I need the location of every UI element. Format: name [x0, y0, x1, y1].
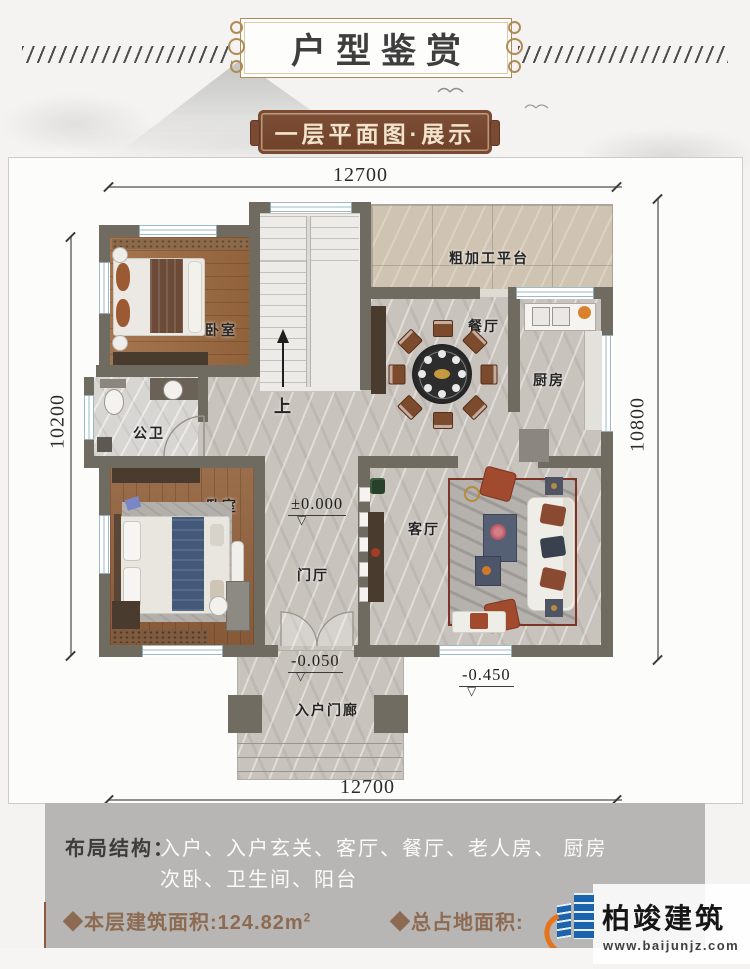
room-label-bathroom: 公卫: [133, 423, 165, 443]
bottom-white-strip: [0, 948, 593, 969]
floor-area-text: ◆本层建筑面积:124.82m2: [63, 906, 311, 935]
kitchen-dish: [578, 306, 591, 319]
bed-bottom-headboard: [114, 514, 121, 614]
wall-segment: [371, 287, 480, 299]
dining-table-dish: [434, 369, 450, 379]
wall-segment: [601, 287, 613, 335]
bird-icon: [524, 100, 550, 113]
subtitle-text: 一层平面图·展示: [275, 115, 476, 149]
page-title: 户型鉴赏: [281, 23, 471, 74]
wall-segment: [221, 645, 278, 657]
bed-bottom-runner: [172, 517, 204, 611]
kitchen-sink: [552, 307, 570, 326]
wall-segment: [96, 365, 260, 377]
logo-url: www.baijunjz.com: [603, 938, 739, 953]
layout-structure-line2: 次卧、卫生间、阳台: [160, 863, 358, 892]
dresser: [113, 352, 208, 365]
kitchen-fridge: [519, 429, 549, 462]
title-box: 户型鉴赏: [240, 18, 512, 78]
bed-top-blanket: [150, 259, 183, 333]
wall-segment: [510, 645, 613, 657]
room-label-living: 客厅: [408, 519, 440, 539]
dim-top-label: 12700: [333, 164, 388, 187]
plant-stand-dot: [551, 483, 557, 489]
bathroom-door-arc: [162, 414, 206, 458]
dim-left-label: 10200: [47, 392, 70, 452]
nightstand: [112, 335, 128, 351]
bed-top-pillow: [116, 299, 130, 327]
kitchen-sink: [532, 307, 550, 326]
window: [270, 202, 352, 213]
bathroom-basin: [163, 380, 183, 400]
hatch-band-right: [518, 46, 728, 63]
dim-right-label: 10800: [627, 395, 650, 455]
porch-column: [228, 695, 262, 733]
toilet-tank: [100, 379, 126, 388]
wall-segment: [358, 456, 458, 468]
level-triangle-icon: ▽: [296, 669, 305, 683]
gold-dish: [464, 486, 480, 502]
plant-stand-dot: [551, 605, 557, 611]
wall-segment: [508, 287, 520, 412]
layout-structure-line1: 入户、入户玄关、客厅、餐厅、老人房、 厨房: [160, 832, 608, 861]
room-label-foyer: 门厅: [297, 565, 329, 585]
logo-name: 柏竣建筑: [602, 897, 726, 937]
floor-area-value: ◆本层建筑面积:124.82m: [63, 912, 304, 934]
layout-structure-label: 布局结构：: [65, 832, 175, 861]
bedroom-bottom-chair: [209, 596, 228, 616]
window: [99, 515, 110, 574]
bedroom-bottom-desk: [226, 581, 250, 631]
entry-door-arcs: [277, 606, 357, 648]
wall-segment: [254, 456, 265, 657]
bed-bottom-sidepillow: [210, 524, 224, 546]
porch-step-line: [237, 743, 402, 744]
wall-segment: [601, 430, 613, 657]
nightstand: [112, 247, 128, 263]
window: [139, 225, 217, 237]
bird-icon: [437, 83, 465, 97]
porch-step-line: [237, 757, 402, 758]
bench-cushion: [470, 613, 488, 629]
logo-mark: [548, 890, 602, 952]
floor-terrace: [371, 204, 613, 290]
stair-arrow-line: [282, 341, 284, 387]
cloud-scroll-ornament-left: [227, 21, 245, 73]
dining-plates: [438, 350, 446, 358]
dining-chair: [433, 320, 453, 337]
wall-segment: [360, 202, 371, 390]
window: [601, 335, 613, 432]
bedroom-bottom-decor-strip: [112, 630, 208, 643]
window: [516, 287, 594, 299]
level-triangle-icon: ▽: [467, 684, 476, 698]
stair-divider: [306, 216, 311, 387]
room-label-bedroom-top: 卧室: [205, 320, 237, 340]
dining-sideboard: [371, 306, 386, 394]
window: [439, 645, 512, 657]
floor-area-sup: 2: [304, 910, 312, 924]
dining-chair: [481, 365, 498, 385]
tv-cabinet-vase: [371, 548, 380, 557]
sofa-pillow: [540, 535, 567, 558]
window: [84, 395, 94, 440]
bathroom-stool: [97, 437, 112, 452]
wall-segment: [249, 202, 260, 377]
bedroom-top-decor-strip: [112, 239, 248, 249]
stair-arrow-head: [277, 329, 289, 343]
window: [142, 645, 223, 657]
wall-segment: [99, 572, 110, 657]
wall-segment: [84, 438, 94, 468]
tv-cabinet: [368, 512, 384, 602]
hatch-band-left: [22, 46, 232, 63]
sofa-pillow: [539, 503, 566, 527]
cloud-scroll-ornament-right: [505, 21, 523, 73]
toilet-bowl: [104, 389, 124, 415]
dim-bottom-label: 12700: [340, 776, 395, 799]
kitchen-side-counter: [584, 331, 602, 430]
window: [99, 262, 110, 314]
room-label-terrace: 粗加工平台: [449, 248, 529, 268]
dim-line-right: [657, 198, 659, 660]
level-triangle-icon: ▽: [297, 513, 306, 527]
room-label-porch: 入户门廊: [295, 700, 359, 720]
dining-chair: [433, 412, 453, 429]
dim-line-bottom: [108, 799, 622, 801]
poster-page: 户型鉴赏 一层平面图·展示 上: [0, 0, 750, 969]
bedroom-bottom-corner-table: [112, 601, 140, 629]
dining-chair: [389, 365, 406, 385]
side-table-item: [482, 566, 491, 575]
bedroom-bottom-cabinet: [112, 468, 200, 483]
room-label-kitchen: 厨房: [533, 370, 565, 390]
wall-segment: [84, 377, 94, 395]
porch-step-line: [237, 771, 402, 772]
wall-segment: [99, 456, 110, 515]
bed-top-pillow: [116, 263, 130, 291]
porch-column: [374, 695, 408, 733]
bed-bottom-pillow: [123, 521, 141, 561]
wall-segment: [99, 225, 110, 262]
total-area-text: ◆总占地面积:: [390, 906, 524, 935]
wall-segment: [99, 312, 110, 377]
subtitle-plaque: 一层平面图·展示: [258, 110, 492, 154]
dim-line-left: [70, 236, 72, 656]
stairs-up-label: 上: [274, 392, 293, 417]
coffee-table-flowers: [490, 524, 506, 540]
plant: [370, 478, 385, 494]
bed-top-footroll: [188, 261, 202, 333]
